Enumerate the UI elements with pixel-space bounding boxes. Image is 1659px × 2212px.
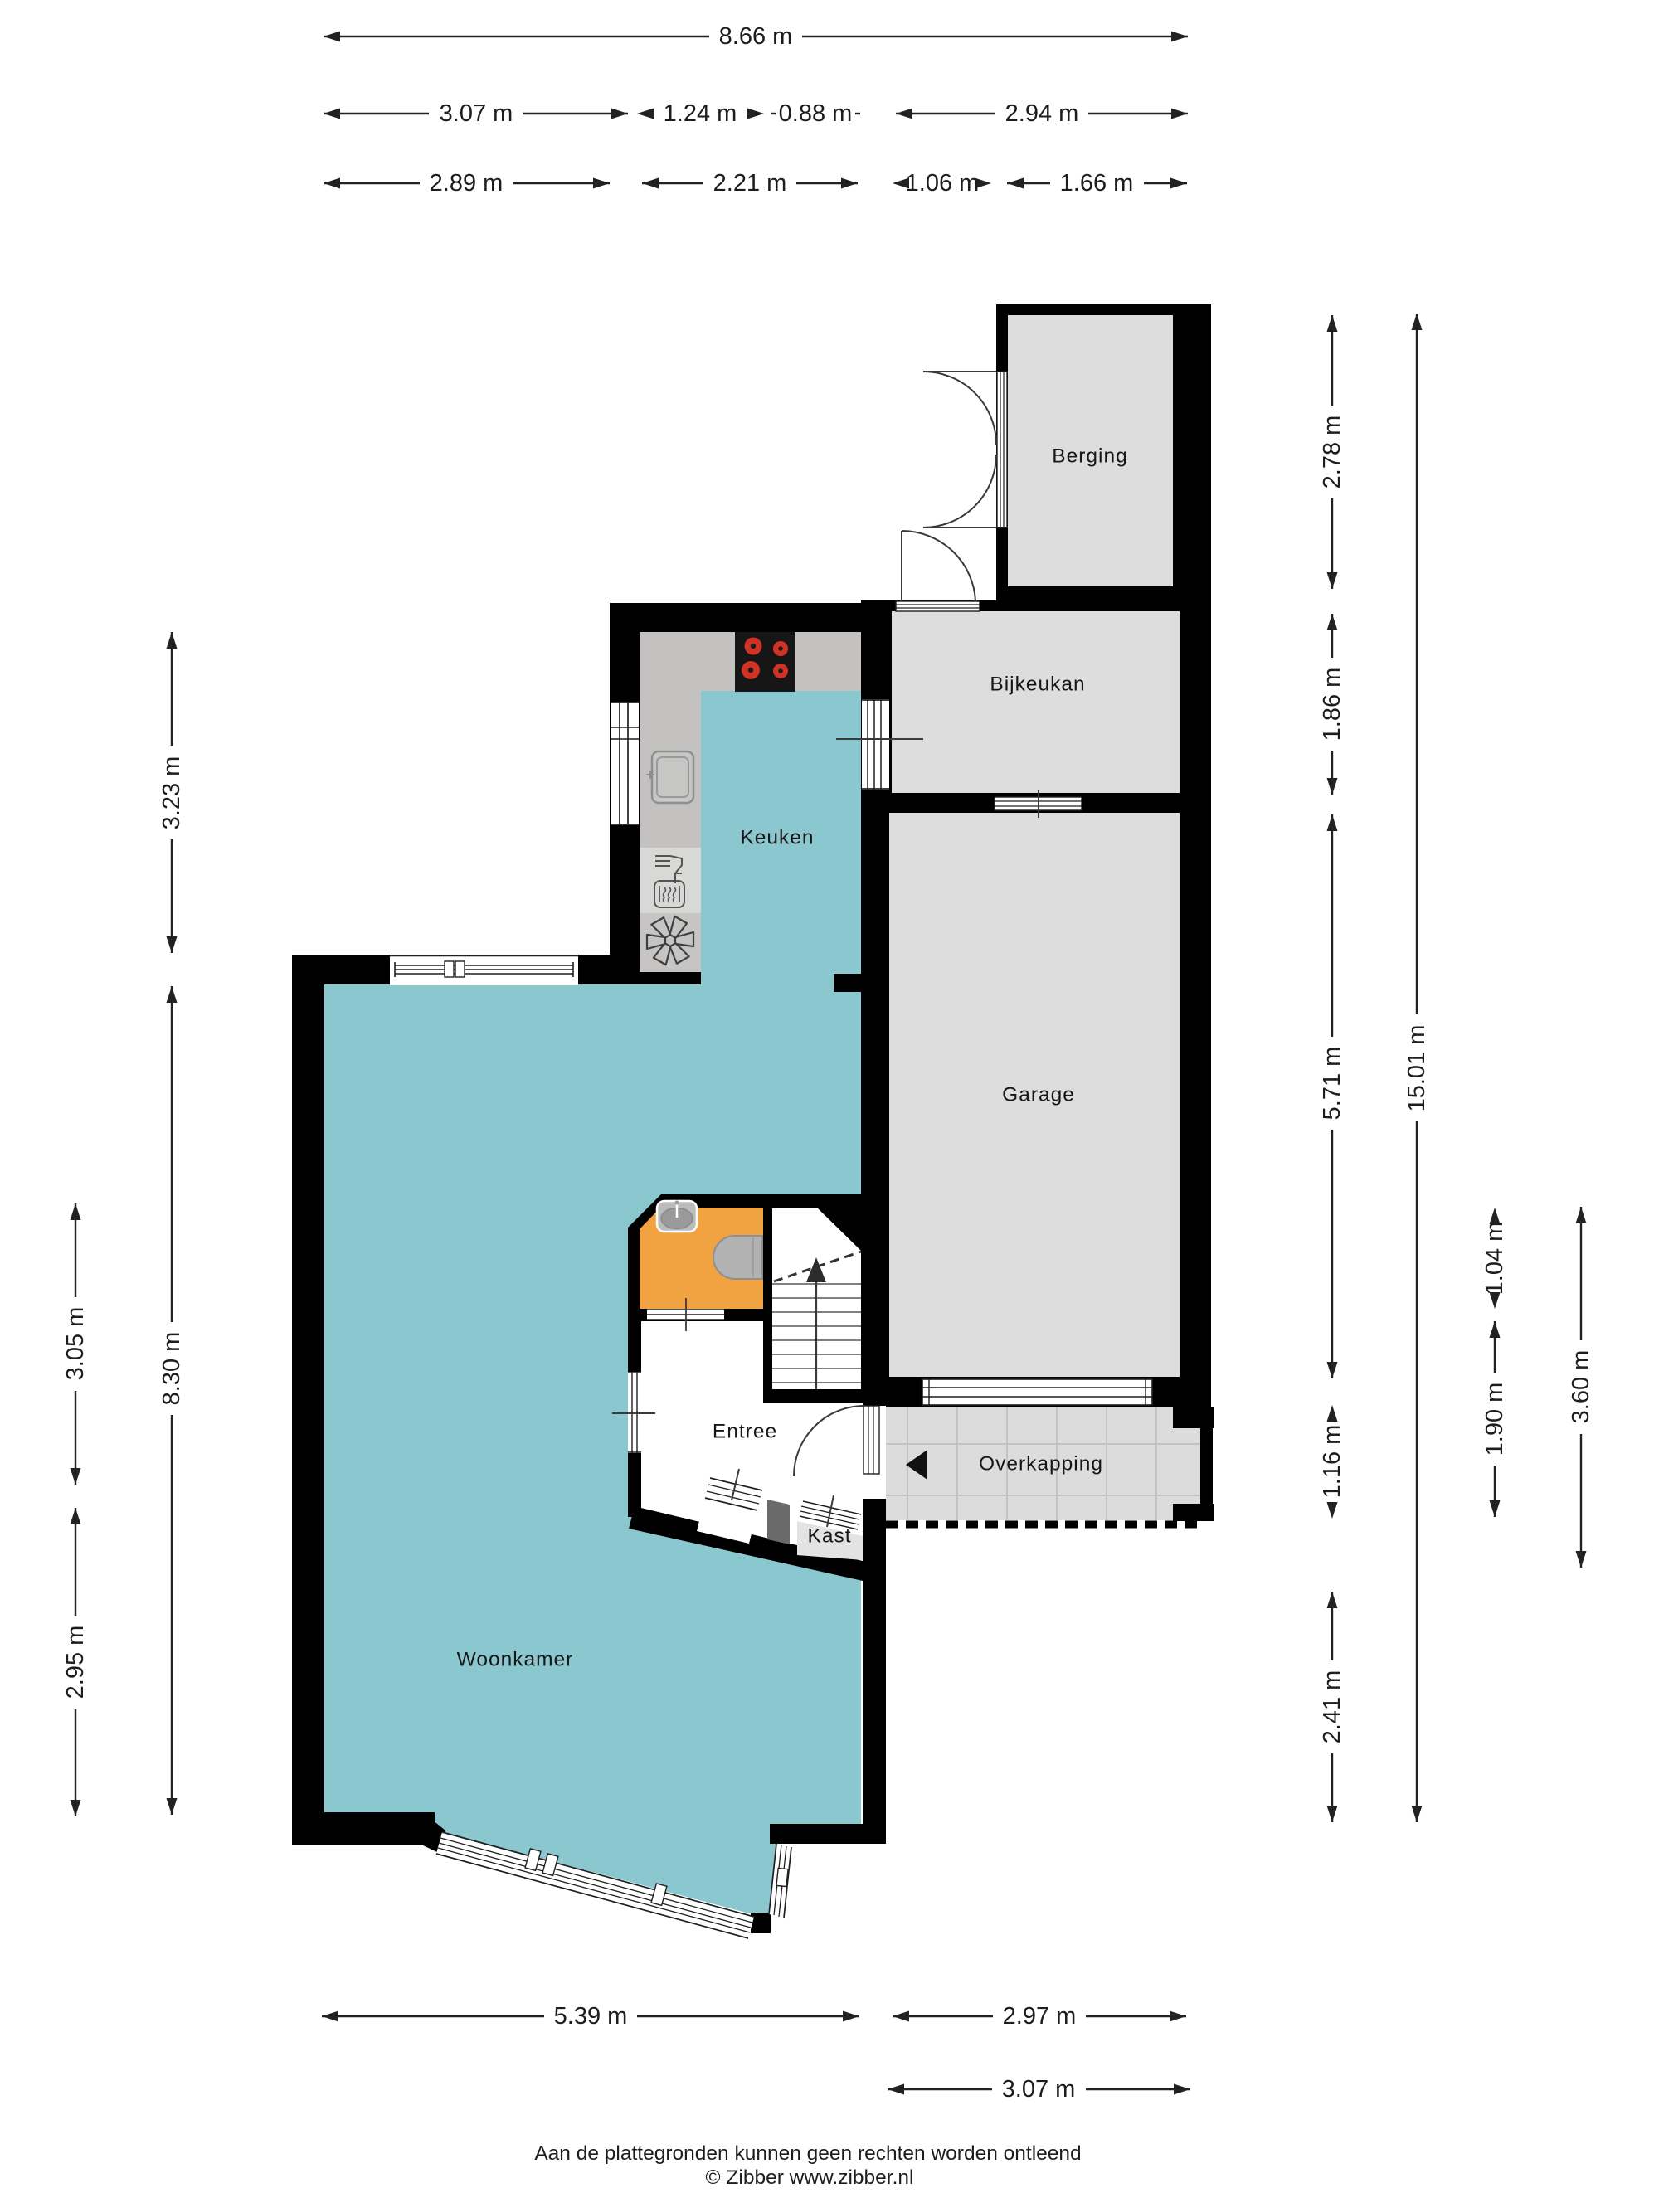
svg-text:1.06 m: 1.06 m [906,170,980,197]
svg-text:2.41 m: 2.41 m [1319,1670,1345,1744]
svg-text:Keuken: Keuken [740,827,814,849]
svg-text:1.90 m: 1.90 m [1481,1383,1508,1456]
svg-text:3.07 m: 3.07 m [440,100,513,127]
svg-text:Woonkamer: Woonkamer [457,1649,574,1671]
svg-text:2.78 m: 2.78 m [1319,416,1345,489]
svg-text:Aan de plattegronden kunnen ge: Aan de plattegronden kunnen geen rechten… [534,2142,1081,2165]
svg-text:3.60 m: 3.60 m [1568,1350,1594,1424]
svg-text:Berging: Berging [1052,445,1127,468]
svg-text:Bijkeukan: Bijkeukan [990,673,1085,696]
svg-text:1.04 m: 1.04 m [1481,1222,1508,1296]
svg-text:0.88 m: 0.88 m [779,100,853,127]
svg-text:1.66 m: 1.66 m [1060,170,1134,197]
svg-text:© Zibber www.zibber.nl: © Zibber www.zibber.nl [706,2166,914,2189]
svg-text:2.89 m: 2.89 m [430,170,504,197]
svg-text:Kast: Kast [807,1525,851,1548]
svg-text:Overkapping: Overkapping [979,1453,1103,1475]
svg-text:2.94 m: 2.94 m [1005,100,1079,127]
svg-text:5.39 m: 5.39 m [554,2003,628,2030]
svg-text:15.01 m: 15.01 m [1404,1025,1430,1112]
svg-text:1.86 m: 1.86 m [1319,668,1345,741]
svg-text:3.07 m: 3.07 m [1002,2076,1076,2103]
svg-text:2.97 m: 2.97 m [1003,2003,1077,2030]
svg-text:1.16 m: 1.16 m [1319,1425,1345,1499]
svg-text:2.21 m: 2.21 m [713,170,787,197]
svg-text:1.24 m: 1.24 m [664,100,737,127]
svg-text:Entree: Entree [713,1421,777,1443]
svg-text:3.23 m: 3.23 m [158,756,185,830]
svg-text:Garage: Garage [1002,1084,1075,1106]
svg-text:5.71 m: 5.71 m [1319,1047,1345,1121]
svg-text:8.30 m: 8.30 m [158,1332,185,1406]
svg-text:8.66 m: 8.66 m [719,23,793,50]
svg-text:3.05 m: 3.05 m [62,1307,89,1381]
svg-text:2.95 m: 2.95 m [62,1626,89,1699]
